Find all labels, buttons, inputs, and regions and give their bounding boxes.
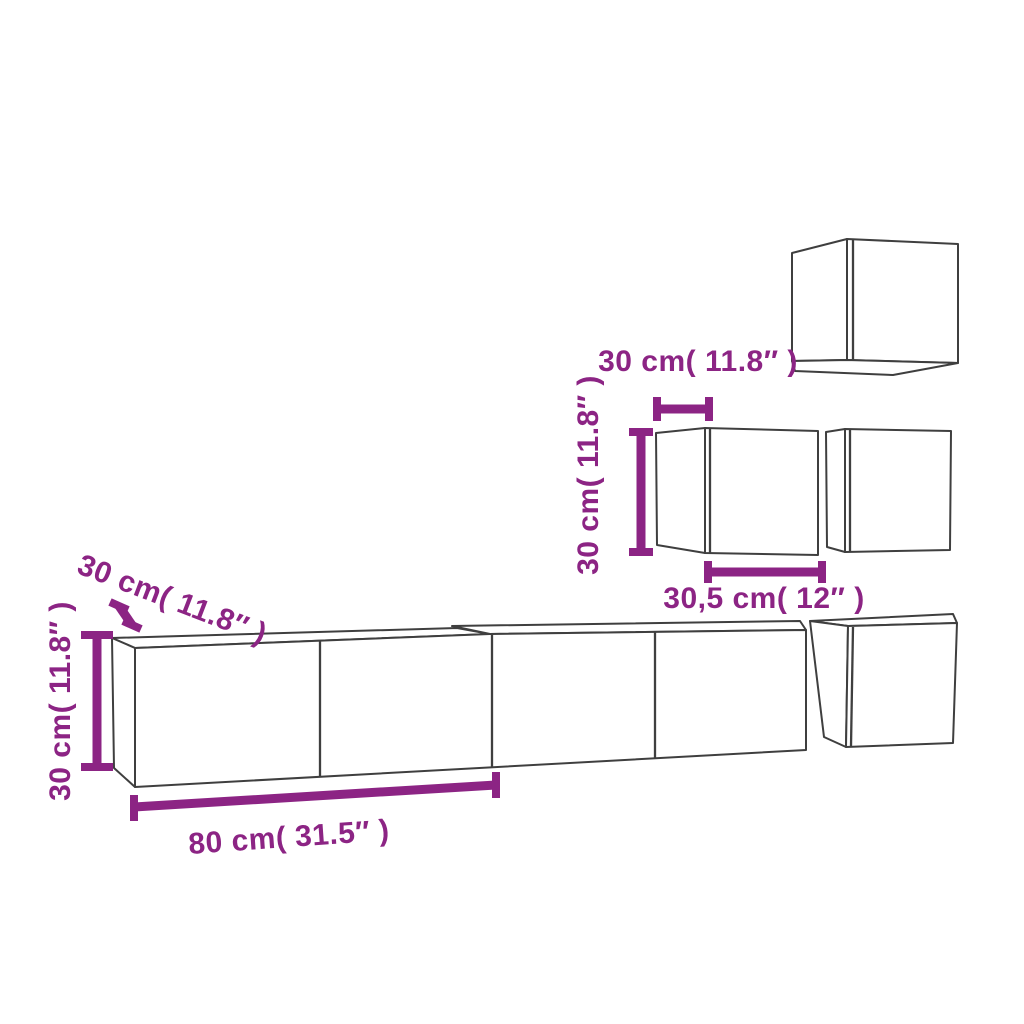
cabinet-mid-left [656,428,818,555]
dim-mark-mid-height [629,432,653,552]
dim-mark-long-depth [110,602,141,629]
mid-right-front-face [845,429,951,552]
bottom-cube-front-face [846,623,957,747]
dim-mark-mid-depth [657,397,709,421]
top-cube-left-face [792,239,847,361]
mid-left-front-face [705,428,818,555]
dim-cap-long-depth-bottom [123,621,141,629]
dim-mark-long-height [81,635,113,767]
cabinet-bottom-right-cube [810,614,957,747]
long-row-front-face [135,630,806,787]
dim-label-mid-depth: 30 cm( 11.8″ ) [598,345,798,379]
long-row-side-face [112,638,135,787]
dim-label-long-height: 30 cm( 11.8″ ) [44,601,78,801]
diagram-canvas [0,0,1024,1024]
dim-mark-mid-width [708,561,822,583]
cabinet-top-right-cube [792,239,958,375]
cabinet-long-row [112,621,806,787]
top-cube-bottom-face [792,360,958,375]
dim-label-mid-height: 30 cm( 11.8″ ) [572,375,606,575]
dim-cap-long-depth-top [110,602,128,610]
product-dimension-diagram: 30 cm( 11.8″ ) 30 cm( 11.8″ ) 30,5 cm( 1… [0,0,1024,1024]
cabinet-mid-right [826,429,951,552]
top-cube-front-face [847,239,958,363]
dim-label-mid-width: 30,5 cm( 12″ ) [663,582,864,616]
dim-bar-long-width [134,785,496,807]
mid-left-side-face [656,428,705,553]
mid-right-side-face [826,429,845,552]
bottom-cube-side-face [810,621,848,747]
